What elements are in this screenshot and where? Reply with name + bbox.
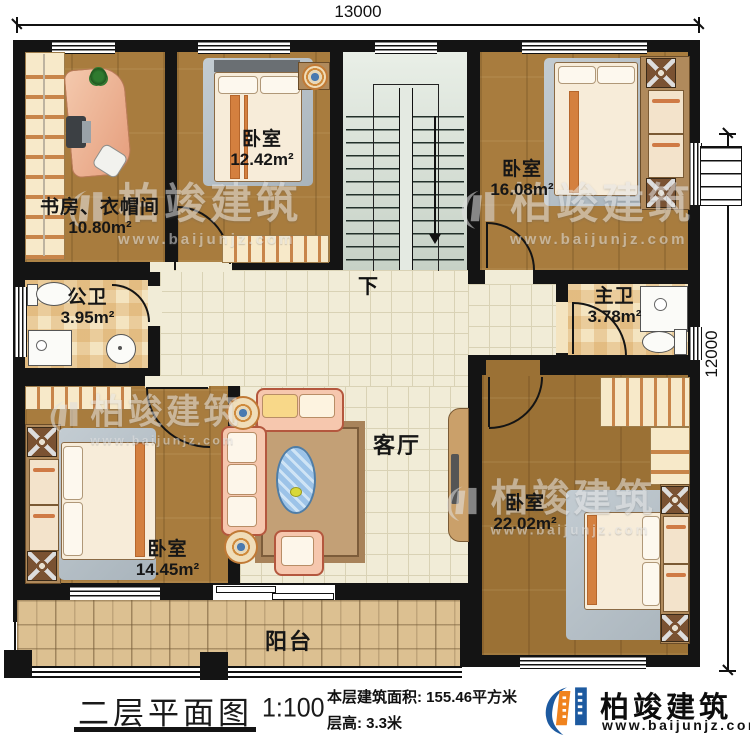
tv: [451, 454, 459, 504]
pillow: [642, 516, 660, 560]
coffee-table: [276, 446, 316, 514]
dimension-ext: [16, 17, 18, 33]
nightstand: [646, 178, 676, 208]
door-leaf: [486, 222, 488, 268]
balcony-rail: [14, 666, 462, 668]
nightstand: [646, 58, 676, 88]
dimension-line-top: [16, 24, 700, 26]
floor-area-info: 本层建筑面积: 155.46平方米: [327, 686, 517, 707]
wardrobe-bedroom-bl: [25, 386, 132, 410]
room-label-bedroom-tr: 卧室 16.08m²: [460, 160, 584, 200]
pillow: [63, 446, 83, 500]
room-label-bedroom-bl: 卧室 14.45m²: [115, 540, 220, 580]
dimension-ext: [719, 133, 736, 135]
shower-tray: [28, 330, 72, 366]
dimension-right-label: 12000: [702, 312, 722, 396]
dimension-ext: [719, 670, 736, 672]
room-label-study: 书房、衣帽间 10.80m²: [25, 198, 175, 238]
sofa-cushion: [299, 394, 335, 418]
stair-down-arrow: [429, 234, 441, 250]
drawing-scale: 1:100: [262, 693, 325, 724]
dimension-top-label: 13000: [306, 2, 410, 22]
stair-arrow-stem: [434, 116, 436, 234]
nightstand-decor: [302, 64, 328, 90]
bedside-cabinet: [648, 90, 684, 134]
toilet: [642, 331, 676, 353]
side-table: [224, 530, 258, 564]
hall-upper-floor: [160, 270, 468, 386]
title-underline: [74, 727, 256, 732]
nightstand: [27, 551, 57, 581]
window-bedroom-tl: [198, 40, 290, 54]
bed-stripe: [588, 516, 596, 604]
stairs-down-label: 下: [358, 270, 378, 299]
sliding-door-leaf: [216, 586, 276, 593]
sofa-cushion: [227, 432, 257, 463]
pillow: [63, 502, 83, 556]
room-label-bedroom-br: 卧室 22.02m²: [470, 494, 580, 534]
window-bedroom-br: [520, 655, 646, 669]
bedside-cabinet: [29, 459, 59, 505]
bedside-cabinet: [663, 564, 689, 612]
brand-website: www.baijunjz.com: [602, 717, 750, 733]
dimension-ext: [698, 17, 700, 33]
hall-east-floor: [468, 284, 556, 355]
bay-window-bedroom-tr: [700, 146, 742, 206]
side-table: [226, 396, 260, 430]
balcony-rail: [14, 671, 462, 673]
brand-logo-icon: [540, 680, 594, 738]
window-bedroom-bl: [70, 585, 160, 601]
window-bedroom-tr: [522, 40, 647, 54]
floorplan-page: 13000 12000: [0, 0, 750, 747]
balcony-rail: [14, 676, 462, 678]
sofa-cushion: [262, 394, 298, 418]
door-leaf: [176, 206, 178, 262]
pillow: [642, 562, 660, 606]
wardrobe-bedroom-tl: [222, 235, 329, 263]
door-leaf: [146, 387, 208, 389]
sofa-cushion: [227, 464, 257, 495]
staircase: [343, 52, 467, 270]
nightstand: [661, 486, 689, 514]
room-label-bedroom-tl: 卧室 12.42m²: [202, 130, 322, 170]
balcony-post: [200, 652, 228, 680]
doorway-bedroom-tr: [485, 270, 533, 284]
window-public-bath: [13, 287, 27, 357]
monitor-screen: [82, 121, 91, 143]
toilet-tank: [674, 329, 687, 355]
balcony-post: [4, 650, 32, 678]
balcony-floor: [17, 600, 460, 666]
nightstand: [27, 427, 57, 457]
bed-headboard-strip: [214, 60, 300, 72]
pillow: [218, 76, 258, 94]
sofa-cushion: [227, 496, 257, 527]
plant: [90, 68, 107, 85]
table-decor: [290, 487, 302, 497]
bedside-cabinet: [648, 134, 684, 178]
doorway-public-bath: [148, 286, 162, 326]
bedside-cabinet: [29, 505, 59, 551]
nightstand: [661, 614, 689, 642]
window-master-bath: [688, 327, 702, 360]
floor-height-info: 层高: 3.3米: [327, 712, 402, 733]
doorway-master-bath: [556, 302, 568, 353]
wardrobe-bedroom-br: [650, 427, 690, 485]
room-label-living: 客厅: [352, 434, 442, 458]
dimension-line-right: [727, 133, 729, 671]
pillow: [558, 66, 596, 84]
door-leaf: [488, 377, 490, 427]
shower-drain: [36, 340, 47, 351]
bedside-cabinet: [663, 516, 689, 564]
armchair-cushion: [281, 536, 314, 566]
room-label-master-bath: 主卫 3.78m²: [572, 287, 657, 327]
sink-drain: [118, 346, 122, 350]
sliding-door-leaf: [272, 593, 334, 600]
doorway-bedroom-br: [486, 360, 540, 376]
room-label-public-bath: 公卫 3.95m²: [40, 288, 135, 328]
pillow: [260, 76, 300, 94]
pillow: [597, 66, 635, 84]
doorway-study: [150, 262, 174, 272]
wardrobe-bedroom-br: [600, 377, 690, 427]
room-label-balcony: 阳台: [249, 630, 329, 654]
